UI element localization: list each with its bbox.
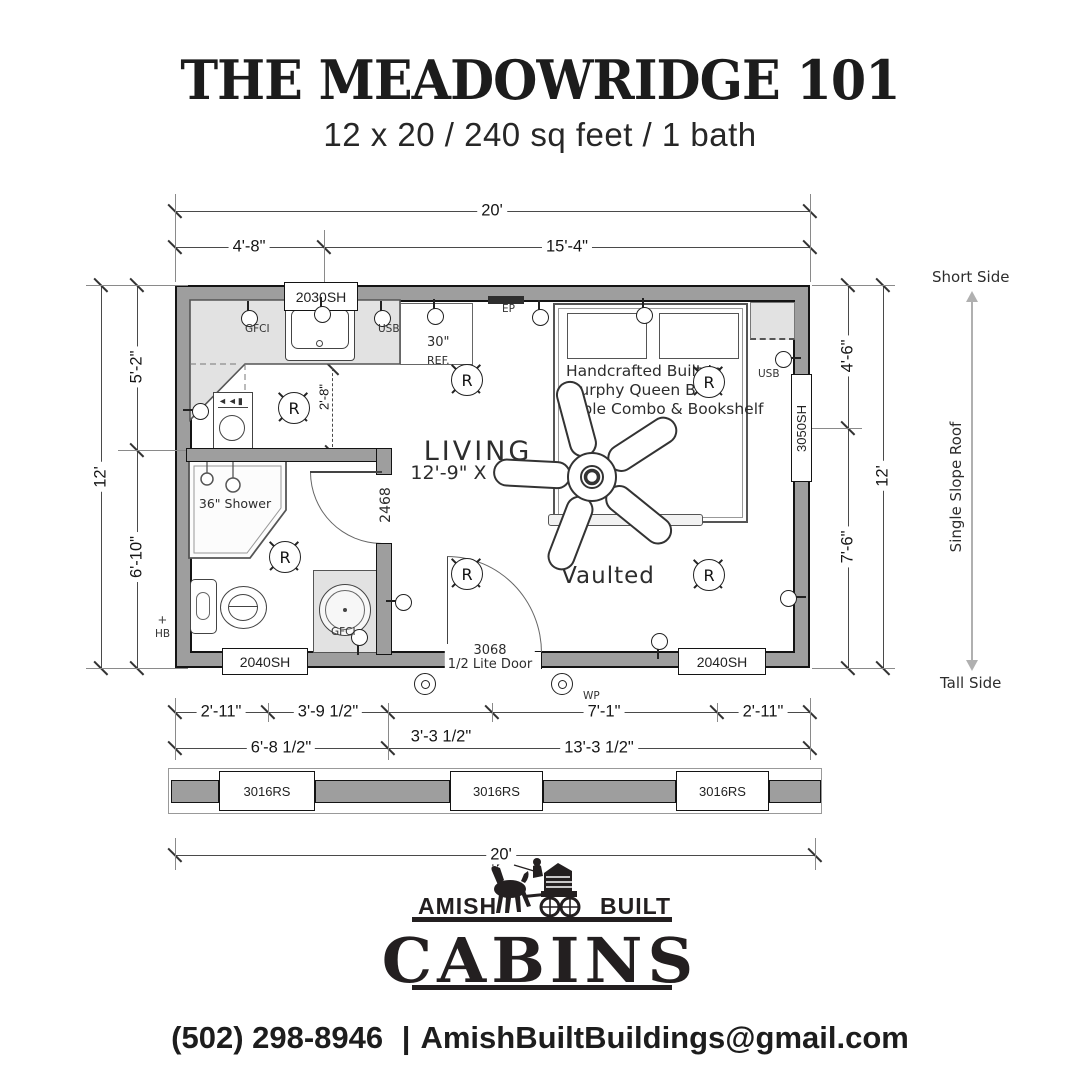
kitchen-dim-label: 2'-8" bbox=[317, 380, 332, 414]
outlet-stem bbox=[657, 649, 659, 659]
gfci-kitchen-label: GFCI bbox=[245, 323, 270, 335]
extension-line bbox=[175, 838, 176, 870]
dim-top-total: 20' bbox=[477, 202, 507, 221]
outlet-symbol bbox=[427, 308, 444, 325]
dim-b7: 13'-3 1/2" bbox=[560, 739, 638, 758]
entry-door-type: 1/2 Lite Door bbox=[448, 658, 532, 672]
outlet-stem bbox=[320, 297, 322, 307]
dim-top-right: 15'-4" bbox=[542, 238, 592, 257]
window-br-label: 2040SH bbox=[697, 654, 748, 670]
outlet-stem bbox=[247, 301, 249, 311]
flyer-canvas: THE MEADOWRIDGE 101 12 x 20 / 240 sq fee… bbox=[0, 0, 1080, 1080]
outlet-stem bbox=[386, 600, 396, 602]
outlet-symbol bbox=[775, 351, 792, 368]
transom-window-3: 3016RS bbox=[676, 771, 769, 811]
extension-line bbox=[175, 194, 176, 282]
extension-line bbox=[268, 703, 269, 722]
dim-left-total: 12' bbox=[92, 462, 111, 492]
strip-wall-seg2 bbox=[315, 780, 450, 803]
appliance-burner bbox=[219, 415, 245, 441]
roof-arrow-down bbox=[966, 660, 978, 671]
entry-door-label: 3068 1/2 Lite Door bbox=[445, 644, 535, 672]
logo-rule-top bbox=[412, 917, 672, 922]
gfci-bath-label: GFCI bbox=[331, 626, 356, 638]
toilet-seat bbox=[228, 594, 258, 621]
hb-label: HB bbox=[155, 628, 170, 640]
light-circle: R bbox=[693, 559, 725, 591]
contact-email: AmishBuiltBuildings@gmail.com bbox=[420, 1020, 908, 1055]
outlet-symbol bbox=[636, 307, 653, 324]
ref-size-label: 30" bbox=[427, 335, 450, 350]
toilet-seat-line bbox=[229, 606, 258, 607]
extension-line bbox=[86, 668, 188, 669]
entry-door-size: 3068 bbox=[448, 644, 532, 658]
window-bottom-right: 2040SH bbox=[678, 648, 766, 675]
window-right-label: 3050SH bbox=[794, 405, 809, 452]
transom-window-2: 3016RS bbox=[450, 771, 543, 811]
extension-line bbox=[810, 698, 811, 760]
toilet-tank-detail bbox=[196, 592, 210, 620]
extension-line bbox=[812, 428, 862, 429]
outlet-stem bbox=[380, 301, 382, 311]
extension-line bbox=[815, 838, 816, 870]
hose-bib-icon: + bbox=[158, 612, 167, 629]
roof-arrow-up bbox=[966, 291, 978, 302]
exterior-outlet-inner bbox=[421, 680, 430, 689]
usb-kitchen-label: USB bbox=[378, 323, 400, 335]
light-circle: R bbox=[269, 541, 301, 573]
exterior-outlet-inner bbox=[558, 680, 567, 689]
wp-label: WP bbox=[583, 690, 600, 702]
recessed-light-symbol: R bbox=[269, 541, 299, 571]
bath-door-leaf bbox=[310, 471, 382, 473]
short-side-label: Short Side bbox=[932, 268, 1009, 286]
dim-right-lower: 7'-6" bbox=[839, 527, 858, 568]
bath-kitchen-wall bbox=[186, 448, 392, 462]
dim-bottom-total: 20' bbox=[486, 846, 516, 865]
dim-left-lower: 6'-10" bbox=[128, 532, 147, 582]
extension-line bbox=[388, 703, 389, 760]
outlet-stem bbox=[642, 298, 644, 308]
corner-shelf bbox=[750, 302, 795, 340]
roof-arrow-line bbox=[971, 300, 973, 662]
transom-3-label: 3016RS bbox=[699, 784, 746, 799]
appliance-knobs: ◄◄▮ bbox=[218, 396, 248, 408]
light-circle: R bbox=[451, 558, 483, 590]
bed-pillow-left bbox=[567, 313, 647, 359]
outlet-symbol bbox=[192, 403, 209, 420]
dim-b3: 3'-3 1/2" bbox=[407, 728, 475, 747]
extension-line bbox=[324, 230, 325, 282]
outlet-stem bbox=[183, 409, 193, 411]
extension-line bbox=[812, 285, 895, 286]
transom-2-label: 3016RS bbox=[473, 784, 520, 799]
window-right: 3050SH bbox=[791, 374, 812, 482]
extension-line bbox=[717, 703, 718, 722]
recessed-light-symbol: R bbox=[451, 558, 481, 588]
recessed-light-symbol: R bbox=[451, 364, 481, 394]
usb-wall-label: USB bbox=[758, 368, 780, 380]
light-circle: R bbox=[278, 392, 310, 424]
contact-phone: (502) 298-8946 bbox=[171, 1020, 383, 1055]
light-circle: R bbox=[693, 366, 725, 398]
transom-window-1: 3016RS bbox=[219, 771, 315, 811]
recessed-light-symbol: R bbox=[693, 366, 723, 396]
outlet-stem bbox=[791, 357, 801, 359]
bath-door-label: 2468 bbox=[378, 483, 394, 527]
sink-drain bbox=[316, 340, 323, 347]
outlet-symbol bbox=[395, 594, 412, 611]
strip-wall-seg4 bbox=[769, 780, 821, 803]
dim-b6: 6'-8 1/2" bbox=[247, 739, 315, 758]
logo-rule-bottom bbox=[412, 985, 672, 990]
window-bl-label: 2040SH bbox=[240, 654, 291, 670]
transom-1-label: 3016RS bbox=[244, 784, 291, 799]
recessed-light-symbol: R bbox=[693, 559, 723, 589]
contact-separator: | bbox=[402, 1020, 411, 1055]
dim-left-inner-line bbox=[137, 285, 138, 668]
kitchen-dim-line bbox=[332, 368, 333, 452]
logo-built: BUILT bbox=[600, 893, 671, 920]
extension-line bbox=[86, 285, 188, 286]
shower-label: 36" Shower bbox=[199, 496, 271, 511]
outlet-stem bbox=[538, 300, 540, 310]
dim-b1: 2'-11" bbox=[197, 703, 246, 722]
outlet-symbol bbox=[780, 590, 797, 607]
extension-line bbox=[812, 668, 895, 669]
contact-line: (502) 298-8946 |AmishBuiltBuildings@gmai… bbox=[0, 1020, 1080, 1056]
bed-pillow-right bbox=[659, 313, 739, 359]
ref-label: REF. bbox=[427, 354, 450, 367]
extension-line bbox=[492, 703, 493, 722]
outlet-stem bbox=[357, 645, 359, 655]
extension-line bbox=[118, 450, 188, 451]
exterior-outlet-symbol bbox=[414, 673, 436, 695]
outlet-symbol bbox=[651, 633, 668, 650]
dim-b5: 2'-11" bbox=[739, 703, 788, 722]
extension-line bbox=[810, 194, 811, 282]
dim-right-total: 12' bbox=[874, 461, 893, 491]
strip-wall-seg1 bbox=[171, 780, 219, 803]
dim-top-left: 4'-8" bbox=[229, 238, 270, 257]
dim-right-upper: 4'-6" bbox=[839, 336, 858, 377]
exterior-outlet-symbol bbox=[551, 673, 573, 695]
outlet-symbol bbox=[532, 309, 549, 326]
dim-top-row2-line bbox=[175, 247, 810, 248]
outlet-stem bbox=[433, 299, 435, 309]
dim-b2: 3'-9 1/2" bbox=[294, 703, 362, 722]
outlet-stem bbox=[796, 596, 806, 598]
ep-label: EP bbox=[502, 303, 515, 315]
extension-line bbox=[175, 698, 176, 760]
strip-wall-seg3 bbox=[543, 780, 676, 803]
light-circle: R bbox=[451, 364, 483, 396]
roof-label: Single Slope Roof bbox=[947, 422, 965, 553]
recessed-light-symbol: R bbox=[278, 392, 308, 422]
tall-side-label: Tall Side bbox=[940, 674, 1001, 692]
vanity-drain bbox=[343, 608, 347, 612]
window-bottom-left: 2040SH bbox=[222, 648, 308, 675]
dim-left-upper: 5'-2" bbox=[128, 347, 147, 388]
ceiling-fan bbox=[492, 377, 692, 577]
outlet-symbol bbox=[314, 306, 331, 323]
dim-b4: 7'-1" bbox=[584, 703, 625, 722]
